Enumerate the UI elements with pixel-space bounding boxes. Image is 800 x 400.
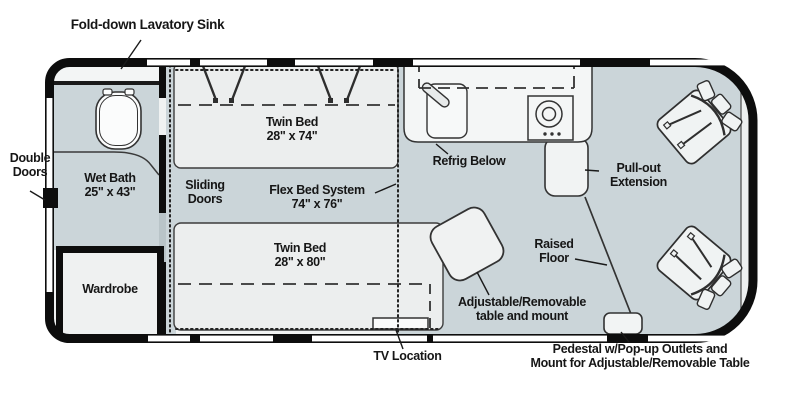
label-double-doors: Double Doors (0, 152, 60, 179)
twin-bed-bottom (174, 223, 443, 330)
label-twin-bed-top: Twin Bed 28" x 74" (232, 116, 352, 143)
label-raised-floor: Raised Floor (524, 238, 584, 265)
label-wet-bath: Wet Bath 25" x 43" (64, 172, 156, 199)
label-fold-down-sink: Fold-down Lavatory Sink (65, 18, 230, 33)
label-wardrobe: Wardrobe (66, 283, 154, 297)
sink-faucet-icon (421, 81, 467, 138)
pull-out-extension (545, 138, 588, 196)
floorplan-stage: Fold-down Lavatory Sink Double Doors Wet… (0, 0, 800, 400)
label-sliding-doors: Sliding Doors (172, 179, 238, 206)
label-table-mount: Adjustable/Removable table and mount (442, 296, 602, 323)
label-tv-location: TV Location (360, 350, 455, 364)
toilet-icon (96, 89, 141, 149)
floorplan-drawing (0, 0, 800, 400)
label-pedestal: Pedestal w/Pop-up Outlets and Mount for … (505, 343, 775, 370)
pedestal (604, 313, 642, 334)
label-flex-bed: Flex Bed System 74" x 76" (252, 184, 382, 211)
label-refrig-below: Refrig Below (414, 155, 524, 169)
label-twin-bed-bottom: Twin Bed 28" x 80" (240, 242, 360, 269)
tv-icon (373, 318, 428, 329)
double-door-marker (43, 188, 58, 208)
label-pull-out-extension: Pull-out Extension (601, 162, 676, 189)
stove-burner-icon (528, 96, 573, 140)
